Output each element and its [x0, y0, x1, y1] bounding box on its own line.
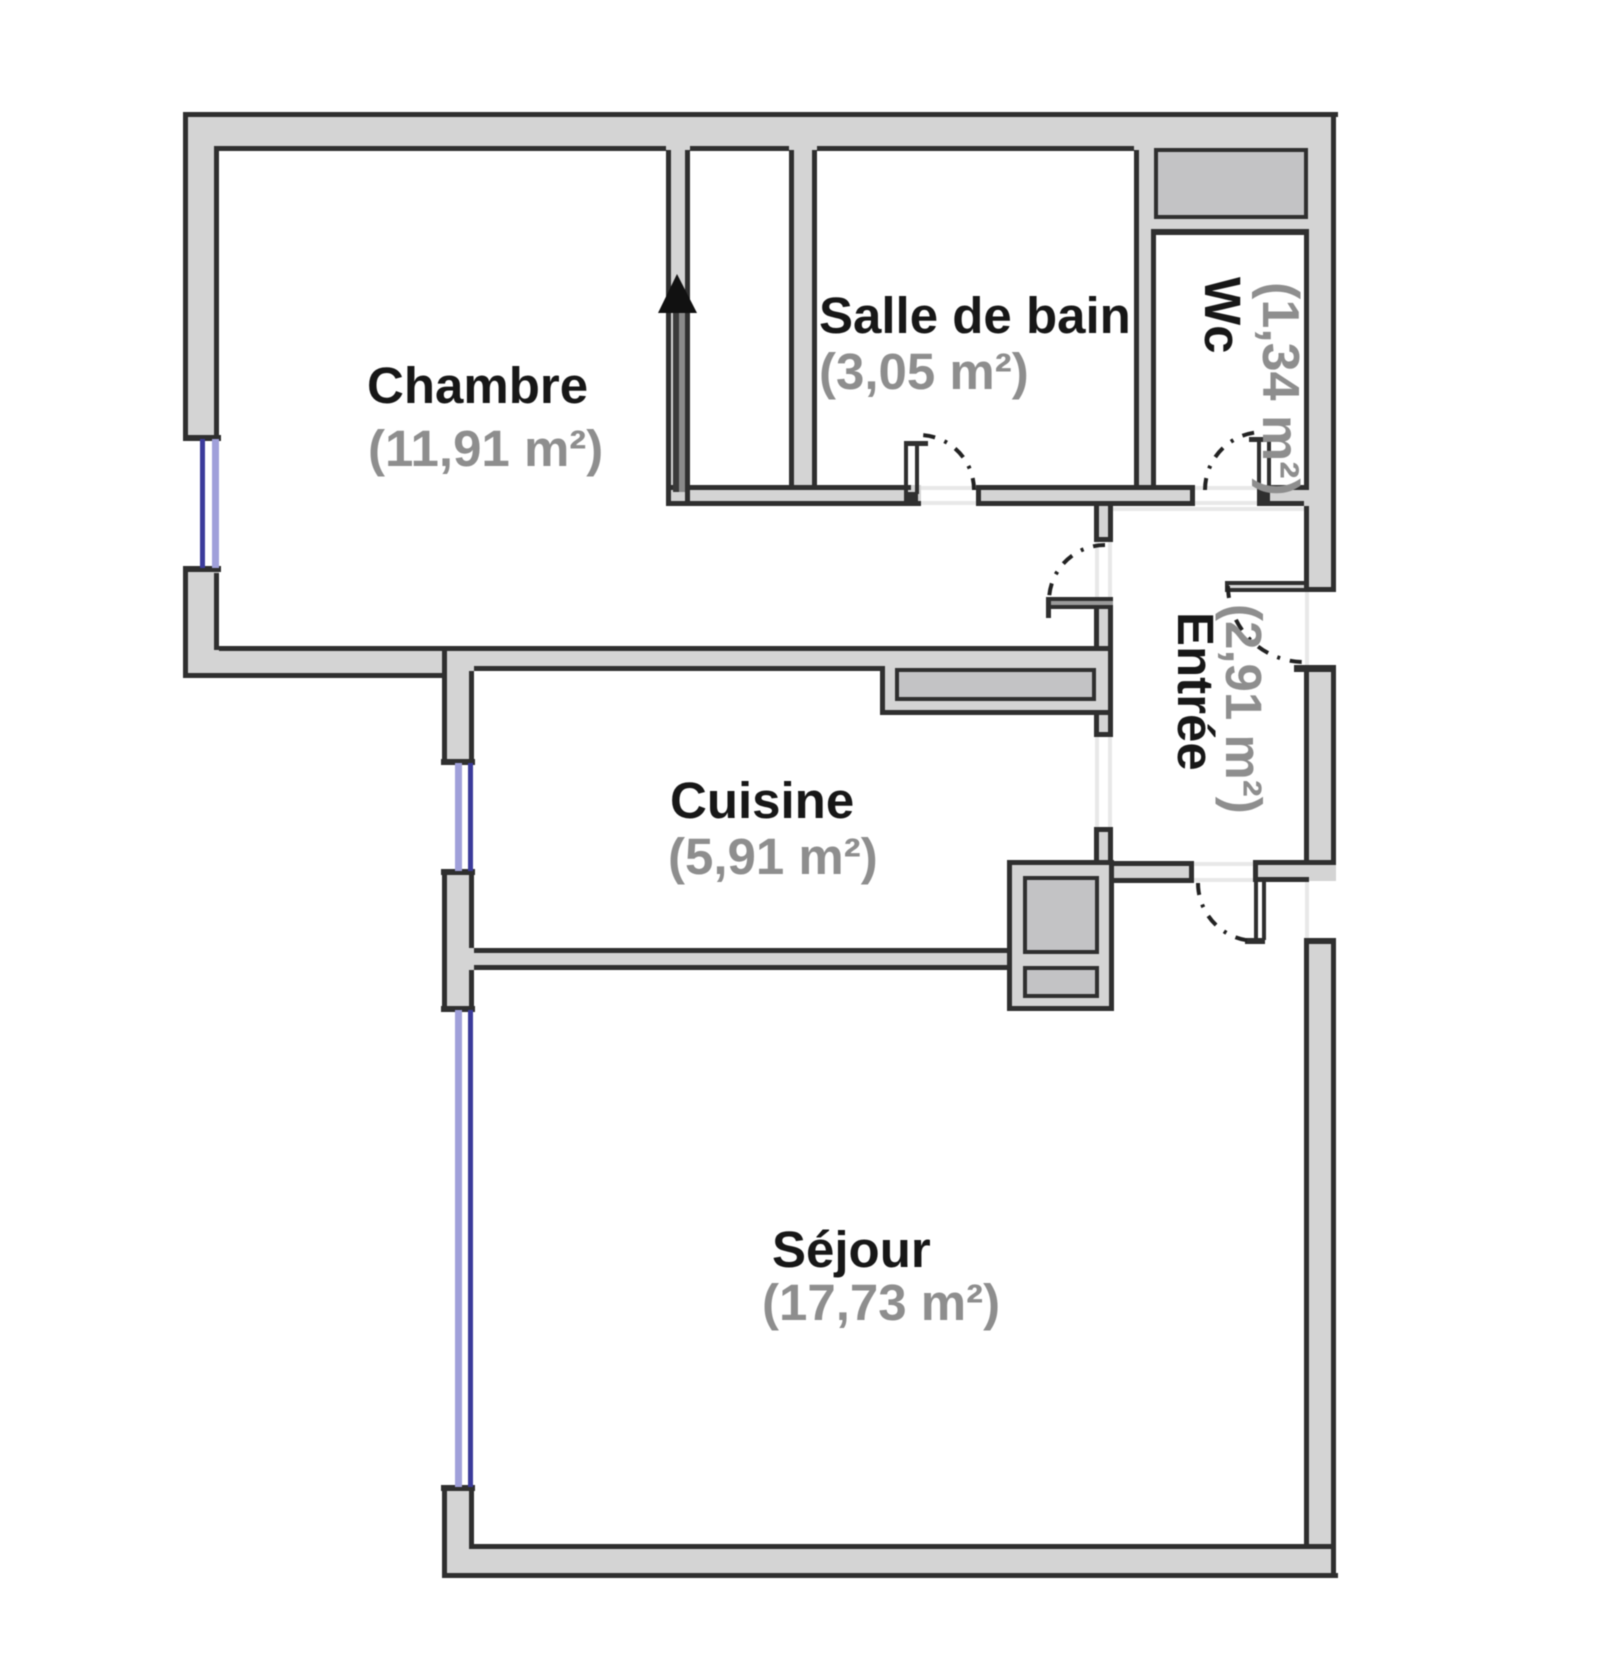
- svg-text:(11,91 m²): (11,91 m²): [368, 420, 603, 477]
- svg-text:Séjour: Séjour: [772, 1221, 931, 1278]
- svg-text:(5,91 m²): (5,91 m²): [668, 828, 878, 885]
- svg-text:Chambre: Chambre: [367, 357, 588, 414]
- svg-text:Salle de bain: Salle de bain: [819, 287, 1131, 344]
- svg-text:(2,91 m²): (2,91 m²): [1215, 604, 1272, 814]
- svg-text:(1,34 m²): (1,34 m²): [1251, 282, 1309, 496]
- svg-text:(17,73 m²): (17,73 m²): [762, 1274, 1000, 1331]
- svg-text:(3,05 m²): (3,05 m²): [819, 343, 1029, 400]
- svg-text:Cuisine: Cuisine: [670, 772, 854, 829]
- svg-text:Wc: Wc: [1194, 277, 1251, 354]
